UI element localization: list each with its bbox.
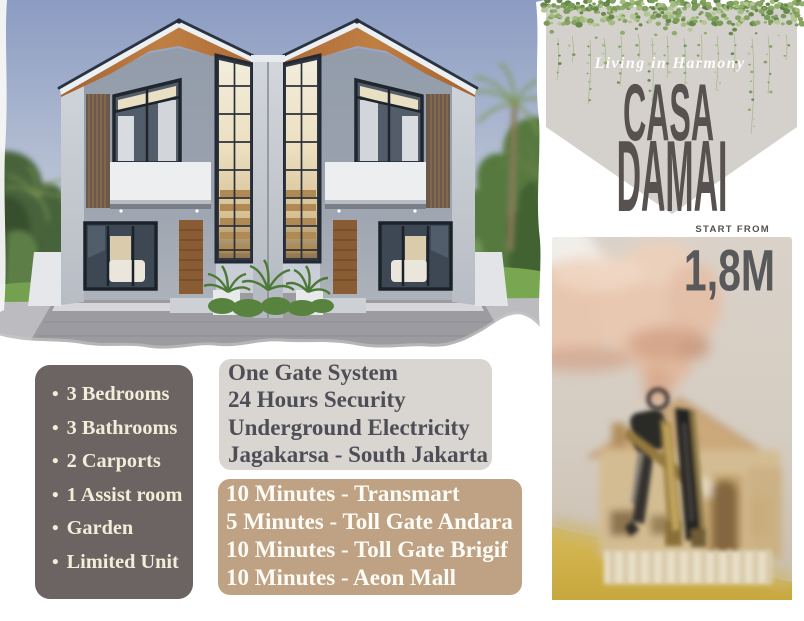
svg-text:DAMAI: DAMAI <box>617 120 728 233</box>
svg-text:1,8M: 1,8M <box>684 238 775 303</box>
svg-text:START FROM: START FROM <box>695 224 770 235</box>
